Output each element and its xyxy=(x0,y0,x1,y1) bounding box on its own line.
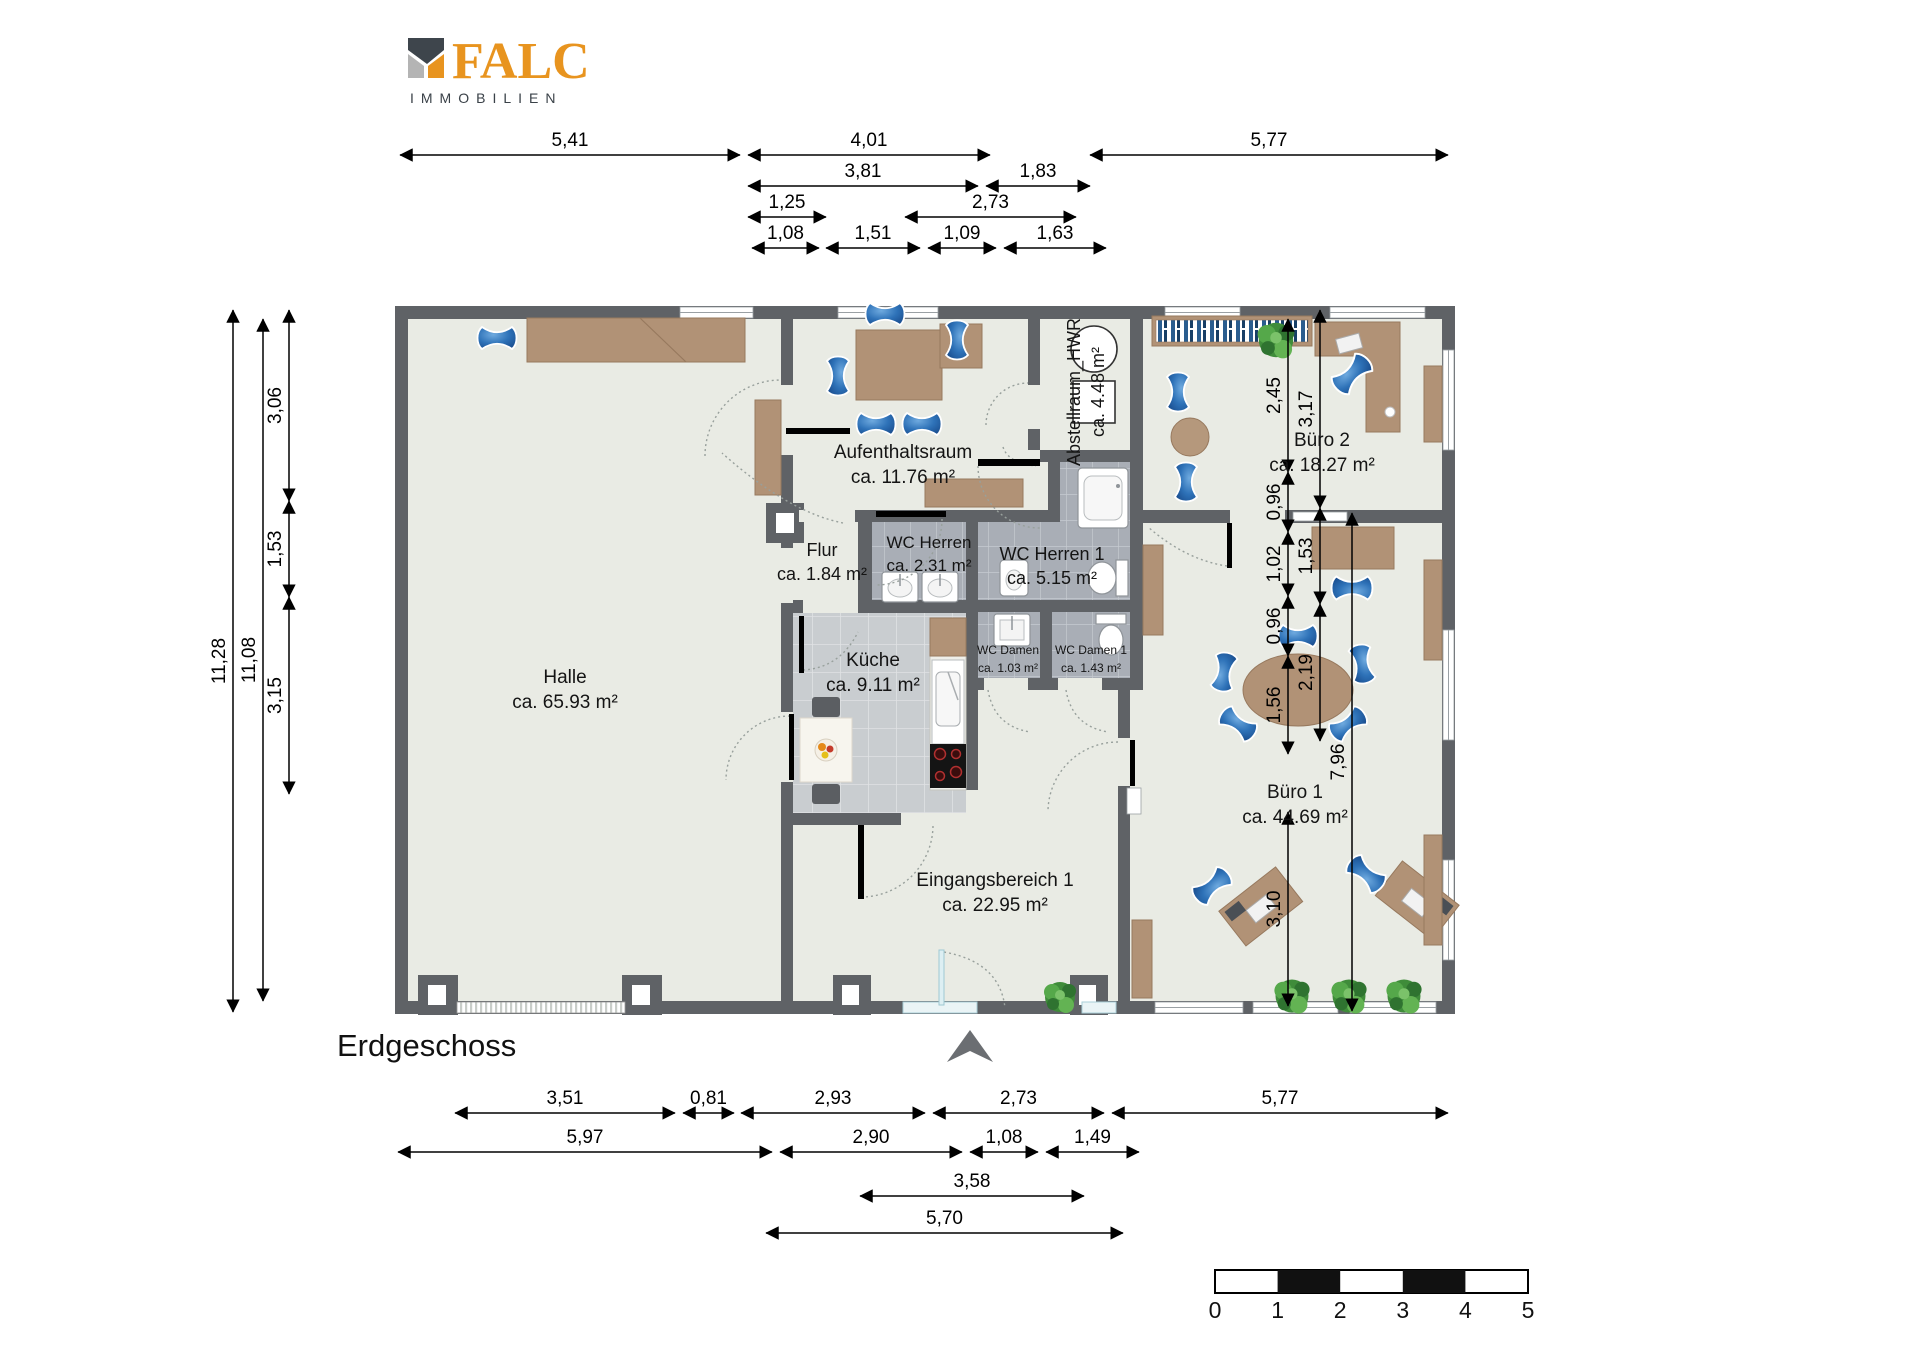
room-area: ca. 5.15 m² xyxy=(1007,568,1097,588)
dimension-label: 1,51 xyxy=(855,223,892,244)
window-icon xyxy=(1443,350,1454,960)
dimension: 5,41 xyxy=(400,130,740,155)
dimension-label: 2,73 xyxy=(1000,1088,1037,1109)
glass-door-leaf xyxy=(939,950,944,1005)
dimension-label: 3,81 xyxy=(845,161,882,182)
dimension-label: 5,97 xyxy=(567,1127,604,1148)
dimension: 1,08 xyxy=(752,223,819,248)
dimension-label: 1,83 xyxy=(1020,161,1057,182)
room-area: ca. 9.11 m² xyxy=(826,675,920,696)
door-leaf xyxy=(858,825,864,899)
dimension-label: 1,09 xyxy=(944,223,981,244)
sink-icon xyxy=(922,572,958,602)
room-area: ca. 1.03 m² xyxy=(978,661,1038,675)
room-area: ca. 65.93 m² xyxy=(512,692,618,713)
dimension-label: 3,10 xyxy=(1264,891,1285,928)
door-leaf xyxy=(1227,523,1232,568)
dimension-label: 5,41 xyxy=(552,130,589,151)
table xyxy=(856,330,942,400)
dimension: 5,77 xyxy=(1112,1088,1448,1113)
dimension: 1,25 xyxy=(748,192,826,217)
dimension: 1,53 xyxy=(265,501,289,597)
dimension-label: 2,45 xyxy=(1264,377,1285,414)
room-area: ca. 44.69 m² xyxy=(1242,807,1348,828)
dimension-label: 2,93 xyxy=(815,1088,852,1109)
dimension: 5,70 xyxy=(766,1208,1123,1233)
dimension-label: 5,77 xyxy=(1262,1088,1299,1109)
scale-label: 5 xyxy=(1522,1297,1535,1323)
kitchen-counter xyxy=(930,618,966,790)
door-leaf xyxy=(1130,740,1135,786)
dimension: 1,09 xyxy=(928,223,996,248)
scale-label: 4 xyxy=(1459,1297,1472,1323)
scale-label: 3 xyxy=(1396,1297,1409,1323)
dimension: 3,81 xyxy=(748,161,978,186)
scale-label: 2 xyxy=(1334,1297,1347,1323)
falc-logo: FALC IMMOBILIEN xyxy=(408,33,590,106)
dimension-label: 3,06 xyxy=(265,387,286,424)
dimension-label: 2,90 xyxy=(853,1127,890,1148)
room-name: Aufenthaltsraum xyxy=(834,442,972,463)
room-name: Flur xyxy=(807,540,838,560)
door-leaf xyxy=(876,511,946,517)
room-name: WC Damen xyxy=(977,643,1039,657)
dimension-label: 1,56 xyxy=(1264,687,1285,724)
entrance-arrow-icon xyxy=(947,1030,993,1062)
dimension-label: 0,81 xyxy=(690,1088,727,1109)
room-area: ca. 22.95 m² xyxy=(942,895,1048,916)
dimension: 1,08 xyxy=(970,1127,1038,1152)
dimension: 1,49 xyxy=(1046,1127,1139,1152)
dimension-label: 11,08 xyxy=(239,637,260,683)
logo-text: FALC xyxy=(452,33,590,90)
dimension-label: 1,53 xyxy=(1296,538,1317,575)
wall-cabinet xyxy=(1424,560,1442,660)
shutter-window-icon xyxy=(457,1002,625,1013)
stove-icon xyxy=(930,744,966,788)
room-area: ca. 1.43 m² xyxy=(1061,661,1121,675)
dimension-label: 0,96 xyxy=(1264,484,1285,521)
dimension: 3,15 xyxy=(265,597,289,794)
wall-cabinet xyxy=(1424,366,1442,442)
dimension-label: 3,17 xyxy=(1296,391,1317,428)
dimension: 0,81 xyxy=(683,1088,734,1113)
dimension: 11,08 xyxy=(239,319,263,1001)
room-area: ca. 18.27 m² xyxy=(1269,455,1375,476)
dimension-label: 5,77 xyxy=(1251,130,1288,151)
dimension: 3,58 xyxy=(860,1171,1084,1196)
room-area: ca. 11.76 m² xyxy=(851,467,955,488)
scale-label: 0 xyxy=(1209,1297,1222,1323)
dimension-label: 4,01 xyxy=(851,130,888,151)
dimension-label: 1,08 xyxy=(986,1127,1023,1148)
desk xyxy=(1312,527,1394,569)
dimension: 2,93 xyxy=(741,1088,925,1113)
room-name: Halle xyxy=(543,667,586,688)
wall-cabinet xyxy=(1424,835,1442,945)
dimension-label: 2,73 xyxy=(972,192,1009,213)
dimension-label: 7,96 xyxy=(1328,744,1349,781)
dimension: 1,83 xyxy=(986,161,1090,186)
dimension-label: 1,63 xyxy=(1037,223,1074,244)
room-name: WC Herren xyxy=(886,533,971,552)
dimension-label: 3,15 xyxy=(265,677,286,714)
scale-bar: 012345 xyxy=(1209,1270,1535,1323)
dimension: 4,01 xyxy=(748,130,990,155)
room-name: Abstellraum_HWR xyxy=(1064,318,1085,466)
dimension: 2,90 xyxy=(780,1127,962,1152)
sink-icon xyxy=(882,572,918,602)
door-leaf xyxy=(786,428,850,434)
dimension-label: 1,25 xyxy=(769,192,806,213)
scale-label: 1 xyxy=(1271,1297,1284,1323)
dimension-label: 3,51 xyxy=(547,1088,584,1109)
dimension: 2,73 xyxy=(905,192,1076,217)
dimension: 1,51 xyxy=(826,223,920,248)
room-area: ca. 4.48 m² xyxy=(1088,347,1108,437)
room-name: Büro 2 xyxy=(1294,430,1350,451)
halle-cabinet xyxy=(755,400,781,495)
door-leaf xyxy=(789,714,794,780)
dimension-label: 5,70 xyxy=(926,1208,963,1229)
room-name: WC Damen 1 xyxy=(1055,643,1127,657)
dimension-label: 0,96 xyxy=(1264,608,1285,645)
logo-subtitle: IMMOBILIEN xyxy=(410,90,562,106)
dimension: 5,97 xyxy=(398,1127,772,1152)
dimension-label: 1,02 xyxy=(1264,546,1285,583)
dimension-label: 3,58 xyxy=(954,1171,991,1192)
dimension-label: 1,53 xyxy=(265,531,286,568)
dimension-label: 2,19 xyxy=(1296,654,1317,691)
kitchen-sink-icon xyxy=(936,672,960,726)
door-leaf xyxy=(978,459,1040,466)
dimension: 1,63 xyxy=(1004,223,1106,248)
dimension-label: 1,08 xyxy=(767,223,804,244)
dimension: 11,28 xyxy=(209,310,233,1012)
dimension: 3,06 xyxy=(265,310,289,501)
wall-niche xyxy=(776,513,794,533)
washbasin-icon xyxy=(1078,468,1128,528)
dimension: 2,73 xyxy=(933,1088,1104,1113)
wall-cabinet xyxy=(1132,920,1152,998)
glass-window xyxy=(1082,1002,1116,1013)
room-name: WC Herren 1 xyxy=(999,544,1104,564)
door-leaf xyxy=(799,616,804,673)
wall-cabinet xyxy=(1143,545,1163,635)
floor-title: Erdgeschoss xyxy=(337,1028,516,1063)
room-area: ca. 2.31 m² xyxy=(886,556,971,575)
sink-icon xyxy=(994,614,1030,646)
dimension-label: 1,49 xyxy=(1074,1127,1111,1148)
room-area: ca. 1.84 m² xyxy=(777,564,867,584)
dimension: 3,51 xyxy=(455,1088,675,1113)
halle-sideboard xyxy=(527,318,745,362)
dimension-label: 11,28 xyxy=(209,638,230,684)
round-stool xyxy=(1171,418,1209,456)
room-name: Büro 1 xyxy=(1267,782,1323,803)
dimension: 5,77 xyxy=(1090,130,1448,155)
room-name: Küche xyxy=(846,650,900,671)
room-name: Eingangsbereich 1 xyxy=(916,870,1073,891)
floor-plan-canvas: FALC IMMOBILIEN Erdgeschoss 012345 5,414… xyxy=(0,0,1920,1357)
